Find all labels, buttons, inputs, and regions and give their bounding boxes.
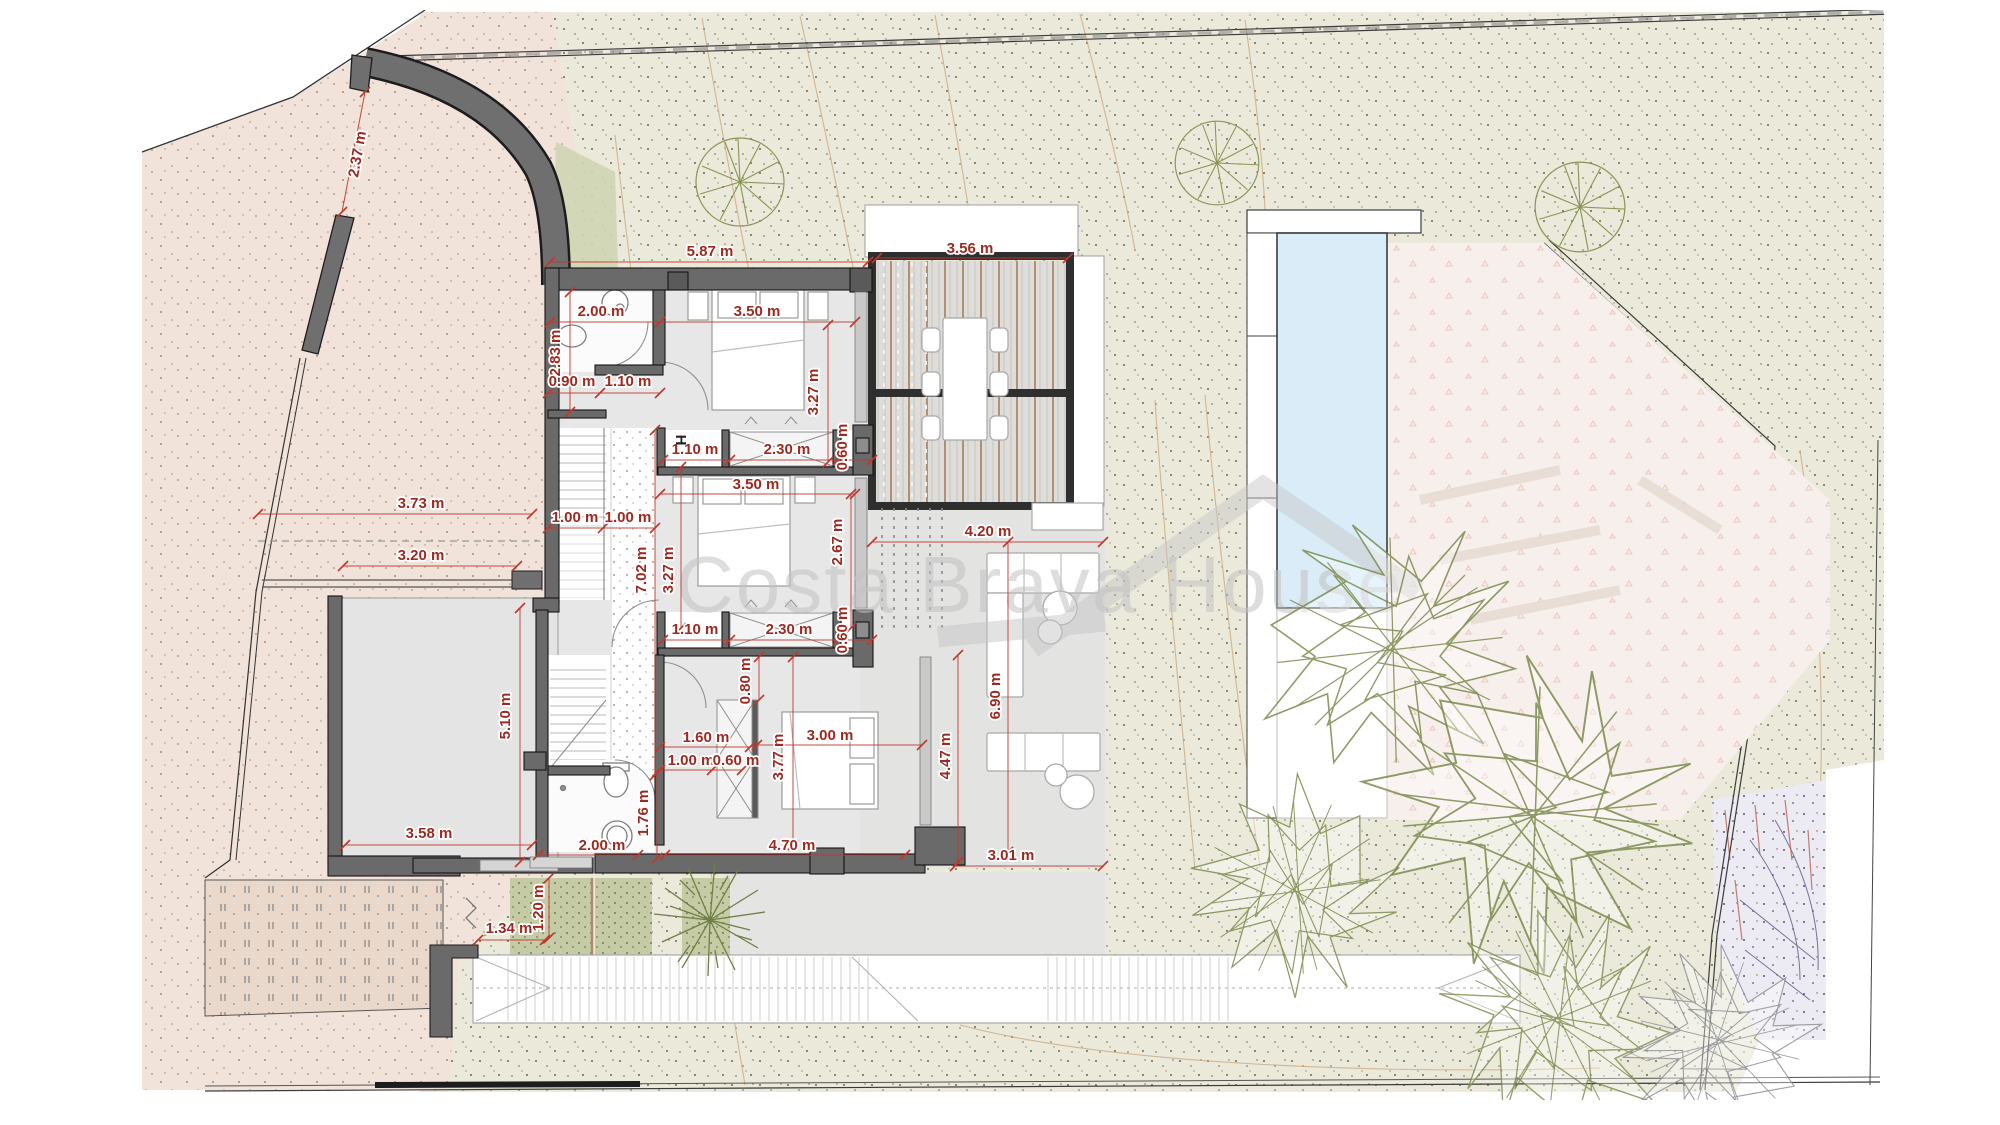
pier-top-2 [850,268,872,292]
sofa-2 [987,733,1100,771]
dimension-label: 1.10 m [672,621,719,638]
wall-garage-left [328,596,342,866]
wall-bottom [595,854,925,873]
floor-drain [561,786,566,791]
dimension-label: 3.50 m [733,476,780,493]
pillow [850,718,874,758]
dimension-label: 1.00 m [668,752,715,769]
wall-segment-upper [350,55,372,92]
wall-closet [548,410,606,418]
rear-apron [723,872,1105,955]
dimension-label: 5.87 m [687,243,734,260]
dimension-label: 3.01 m [988,847,1035,864]
nightstand [795,477,815,503]
chair [922,372,940,396]
stool [1045,764,1067,786]
dimension-label: 1.00 m [552,509,599,526]
dimension-label: 1.34 m [486,920,533,937]
floor-plan-page: Costa Brava House 2.37 m 5.87 m 3.56 m 2… [0,0,2000,1125]
dimension-label: 3.77 m [770,734,787,781]
dimension-label: 2.30 m [764,441,811,458]
dimension-label: 2.00 m [579,837,626,854]
floor-plan-drawing: Costa Brava House 2.37 m 5.87 m 3.56 m 2… [0,0,2000,1125]
chair [922,416,940,440]
dining-set [922,318,1008,440]
dimension-label: 1.76 m [635,790,652,837]
wall-top [548,268,872,290]
dimension-label: 3.50 m [734,303,781,320]
dimension-label: 2.83 m [547,330,564,377]
dimension-label: 2.67 m [829,519,846,566]
dimension-label: 5.10 m [497,693,514,740]
chair [990,328,1008,352]
wall-bath1 [653,290,665,365]
dimension-label: 0.80 m [737,658,754,705]
pillow [850,764,874,804]
roof-stair-treads-1 [500,957,870,1021]
wall-row-a-bottom [658,467,855,475]
nightstand [673,477,693,503]
dimension-label: 0.90 m [549,373,596,390]
dimension-label: 7.02 m [633,547,650,594]
wall-post [512,571,542,589]
nightstand [808,292,828,320]
dimension-label: 0.60 m [713,752,760,769]
landing-dots [612,428,655,770]
pool-deck-top [1247,210,1421,233]
dimension-label: 4.70 m [769,837,816,854]
dimension-label: 3.00 m [807,727,854,744]
dimension-label: 0.60 m [834,424,851,471]
dimension-label: 0.60 m [834,607,851,654]
chair [990,372,1008,396]
dimension-label: 3.73 m [398,495,445,512]
dimension-label: 6.90 m [987,673,1004,720]
dimension-label: 3.27 m [805,369,822,416]
dimension-label: 3.58 m [406,825,453,842]
wall-bath2-top [548,766,610,775]
hall-marker: H [672,435,689,446]
roof-stair-treads-2 [1040,957,1230,1021]
kitchen-counter [1032,503,1103,530]
driveway-hatch [205,880,443,1016]
dimension-label: 2.00 m [578,303,625,320]
pool-deck-left [1247,233,1277,818]
wall-left [545,268,559,602]
planter-2-speckle [595,878,652,958]
planter-1-speckle [510,878,592,958]
dimension-label: 4.47 m [937,733,954,780]
pier-top-1 [668,272,688,290]
entry-door [530,857,592,868]
dimension-label: 3.27 m [660,547,677,594]
nightstand [688,292,708,320]
wall-garage-right [536,610,548,858]
window-bed1 [855,292,867,422]
dimension-label: 1.10 m [605,373,652,390]
wall-row-b-bottom [658,648,855,656]
pier-hall [524,752,546,770]
lower-roof [473,955,1520,1023]
dimension-label: 4.20 m [965,523,1012,540]
chair [990,416,1008,440]
dining-table [943,318,987,440]
dimension-label: 3.56 m [947,240,994,257]
pier-a-core [856,438,869,453]
chair [922,328,940,352]
dimension-label: 1.00 m [605,509,652,526]
dimension-label: 1.60 m [683,729,730,746]
dimension-label: 1.20 m [530,885,547,932]
dimension-label: 2.30 m [766,621,813,638]
dimension-label: 3.20 m [398,547,445,564]
